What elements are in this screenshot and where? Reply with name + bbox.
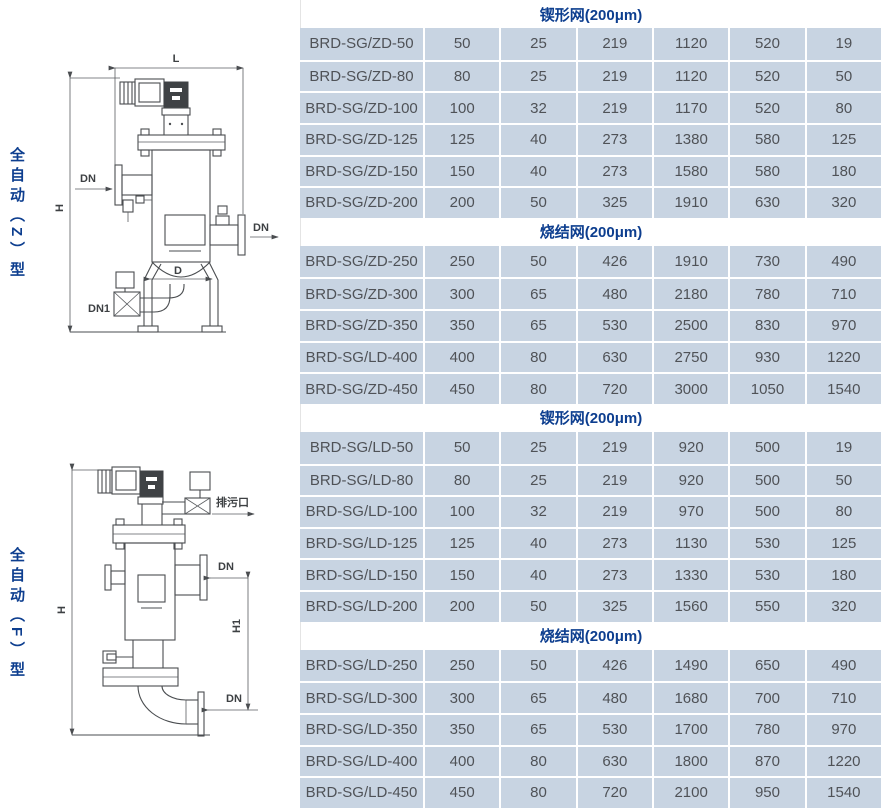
table-row: BRD-SG/LD-4004008063018008701220 [300,745,881,777]
value-cell: 25 [501,432,575,464]
table-row: BRD-SG/LD-350350655301700780970 [300,713,881,745]
value-cell: 300 [425,683,499,713]
value-cell: 530 [578,311,652,341]
value-cell: 580 [730,125,804,155]
table-section-z-wedge: 锲形网(200μm) BRD-SG/ZD-505025219112052019B… [300,0,881,218]
value-cell: 1130 [654,529,728,559]
value-cell: 1540 [807,778,881,808]
table-row: BRD-SG/ZD-10010032219117052080 [300,91,881,123]
table-rows-f-sintered: BRD-SG/LD-250250504261490650490BRD-SG/LD… [300,650,881,808]
value-cell: 530 [730,529,804,559]
value-cell: 830 [730,311,804,341]
value-cell: 200 [425,188,499,218]
value-cell: 490 [807,246,881,278]
value-cell: 720 [578,374,652,404]
table-row: BRD-SG/ZD-125125402731380580125 [300,123,881,155]
model-cell: BRD-SG/LD-250 [300,650,423,682]
model-cell: BRD-SG/LD-80 [300,466,423,496]
section-header-sintered-z: 烧结网(200μm) [300,218,881,246]
value-cell: 530 [578,715,652,745]
value-cell: 19 [807,28,881,60]
value-cell: 65 [501,279,575,309]
dim-label-dn-in: DN [80,173,96,185]
model-cell: BRD-SG/LD-125 [300,529,423,559]
dim-label-h1: H1 [231,619,243,633]
table-rows-z-wedge: BRD-SG/ZD-505025219112052019BRD-SG/ZD-80… [300,28,881,218]
value-cell: 426 [578,650,652,682]
value-cell: 1490 [654,650,728,682]
value-cell: 50 [807,466,881,496]
value-cell: 1910 [654,188,728,218]
value-cell: 32 [501,497,575,527]
table-row: BRD-SG/ZD-45045080720300010501540 [300,372,881,404]
model-cell: BRD-SG/LD-150 [300,560,423,590]
value-cell: 870 [730,747,804,777]
model-cell: BRD-SG/ZD-150 [300,157,423,187]
value-cell: 65 [501,683,575,713]
catalog-page: 全自动（Z）型 全自动（F）型 L H [0,0,881,808]
value-cell: 630 [730,188,804,218]
table-section-f-wedge: 锲形网(200μm) BRD-SG/LD-50502521992050019BR… [300,404,881,622]
value-cell: 550 [730,592,804,622]
value-cell: 80 [807,93,881,123]
value-cell: 273 [578,157,652,187]
value-cell: 325 [578,188,652,218]
value-cell: 1580 [654,157,728,187]
value-cell: 80 [501,747,575,777]
value-cell: 50 [501,188,575,218]
value-cell: 920 [654,432,728,464]
value-cell: 219 [578,432,652,464]
section-header-wedge-f: 锲形网(200μm) [300,404,881,432]
value-cell: 250 [425,650,499,682]
value-cell: 780 [730,279,804,309]
dim-label-H: H [54,204,66,212]
dim-label-h: H [56,606,68,614]
value-cell: 125 [425,529,499,559]
value-cell: 25 [501,28,575,60]
value-cell: 1800 [654,747,728,777]
value-cell: 630 [578,747,652,777]
value-cell: 1910 [654,246,728,278]
value-cell: 25 [501,62,575,92]
value-cell: 50 [501,592,575,622]
value-cell: 273 [578,529,652,559]
model-cell: BRD-SG/ZD-80 [300,62,423,92]
model-cell: BRD-SG/ZD-250 [300,246,423,278]
value-cell: 100 [425,93,499,123]
value-cell: 1330 [654,560,728,590]
value-cell: 180 [807,157,881,187]
value-cell: 40 [501,529,575,559]
model-cell: BRD-SG/LD-350 [300,715,423,745]
model-cell: BRD-SG/ZD-300 [300,279,423,309]
value-cell: 219 [578,28,652,60]
value-cell: 50 [501,650,575,682]
model-cell: BRD-SG/ZD-450 [300,374,423,404]
table-row: BRD-SG/ZD-505025219112052019 [300,28,881,60]
value-cell: 150 [425,157,499,187]
value-cell: 730 [730,246,804,278]
value-cell: 219 [578,93,652,123]
model-cell: BRD-SG/LD-200 [300,592,423,622]
table-row: BRD-SG/LD-200200503251560550320 [300,590,881,622]
value-cell: 480 [578,683,652,713]
value-cell: 3000 [654,374,728,404]
value-cell: 630 [578,343,652,373]
value-cell: 219 [578,466,652,496]
value-cell: 50 [807,62,881,92]
value-cell: 80 [425,62,499,92]
table-row: BRD-SG/LD-4504508072021009501540 [300,776,881,808]
value-cell: 80 [501,343,575,373]
value-cell: 920 [654,466,728,496]
value-cell: 2180 [654,279,728,309]
table-row: BRD-SG/LD-50502521992050019 [300,432,881,464]
value-cell: 450 [425,778,499,808]
value-cell: 580 [730,157,804,187]
table-section-f-sintered: 烧结网(200μm) BRD-SG/LD-2502505042614906504… [300,622,881,808]
value-cell: 320 [807,592,881,622]
value-cell: 710 [807,683,881,713]
value-cell: 300 [425,279,499,309]
model-cell: BRD-SG/LD-400 [300,343,423,373]
table-row: BRD-SG/ZD-808025219112052050 [300,60,881,92]
dim-label-L: L [173,53,180,65]
type-label-z: 全自动（Z）型 [7,147,25,281]
value-cell: 500 [730,466,804,496]
value-cell: 350 [425,311,499,341]
value-cell: 2500 [654,311,728,341]
value-cell: 50 [425,28,499,60]
value-cell: 1120 [654,28,728,60]
model-cell: BRD-SG/LD-400 [300,747,423,777]
value-cell: 50 [425,432,499,464]
model-cell: BRD-SG/ZD-350 [300,311,423,341]
model-cell: BRD-SG/ZD-100 [300,93,423,123]
value-cell: 520 [730,28,804,60]
value-cell: 273 [578,560,652,590]
value-cell: 1220 [807,747,881,777]
value-cell: 970 [654,497,728,527]
value-cell: 780 [730,715,804,745]
value-cell: 1050 [730,374,804,404]
dim-label-dn-out: DN [253,222,269,234]
value-cell: 1380 [654,125,728,155]
value-cell: 700 [730,683,804,713]
diagram-f-type: H 排污口 [50,446,302,761]
value-cell: 1120 [654,62,728,92]
model-cell: BRD-SG/LD-450 [300,778,423,808]
value-cell: 1540 [807,374,881,404]
table-row: BRD-SG/LD-300300654801680700710 [300,681,881,713]
model-cell: BRD-SG/ZD-200 [300,188,423,218]
value-cell: 65 [501,311,575,341]
table-row: BRD-SG/ZD-350350655302500830970 [300,309,881,341]
table-rows-z-sintered: BRD-SG/ZD-250250504261910730490BRD-SG/ZD… [300,246,881,404]
value-cell: 80 [807,497,881,527]
value-cell: 500 [730,432,804,464]
value-cell: 219 [578,497,652,527]
value-cell: 180 [807,560,881,590]
table-row: BRD-SG/LD-4004008063027509301220 [300,341,881,373]
value-cell: 1220 [807,343,881,373]
table-row: BRD-SG/ZD-300300654802180780710 [300,277,881,309]
table-rows-f-wedge: BRD-SG/LD-50502521992050019BRD-SG/LD-808… [300,432,881,622]
value-cell: 100 [425,497,499,527]
table-row: BRD-SG/ZD-150150402731580580180 [300,155,881,187]
value-cell: 1170 [654,93,728,123]
value-cell: 65 [501,715,575,745]
value-cell: 426 [578,246,652,278]
value-cell: 490 [807,650,881,682]
value-cell: 273 [578,125,652,155]
value-cell: 32 [501,93,575,123]
drain-outlet-label: 排污口 [216,495,249,509]
dim-label-D: D [174,265,182,277]
value-cell: 970 [807,715,881,745]
value-cell: 1680 [654,683,728,713]
value-cell: 450 [425,374,499,404]
value-cell: 720 [578,778,652,808]
spec-tables: 锲形网(200μm) BRD-SG/ZD-505025219112052019B… [300,0,881,808]
model-cell: BRD-SG/ZD-125 [300,125,423,155]
model-cell: BRD-SG/LD-300 [300,683,423,713]
value-cell: 1560 [654,592,728,622]
table-row: BRD-SG/ZD-250250504261910730490 [300,246,881,278]
table-row: BRD-SG/LD-80802521992050050 [300,464,881,496]
dim-label-dn-bottom: DN [226,693,242,705]
value-cell: 25 [501,466,575,496]
value-cell: 930 [730,343,804,373]
table-row: BRD-SG/LD-1001003221997050080 [300,495,881,527]
value-cell: 500 [730,497,804,527]
section-header-wedge-z: 锲形网(200μm) [300,0,881,28]
value-cell: 125 [807,125,881,155]
value-cell: 1700 [654,715,728,745]
diagram-z-type: L H DN [50,46,302,346]
model-cell: BRD-SG/LD-50 [300,432,423,464]
value-cell: 400 [425,343,499,373]
value-cell: 970 [807,311,881,341]
value-cell: 200 [425,592,499,622]
value-cell: 219 [578,62,652,92]
value-cell: 350 [425,715,499,745]
model-cell: BRD-SG/LD-100 [300,497,423,527]
value-cell: 950 [730,778,804,808]
value-cell: 480 [578,279,652,309]
model-cell: BRD-SG/ZD-50 [300,28,423,60]
type-label-f: 全自动（F）型 [7,547,25,681]
table-row: BRD-SG/ZD-200200503251910630320 [300,186,881,218]
section-header-sintered-f: 烧结网(200μm) [300,622,881,650]
table-section-z-sintered: 烧结网(200μm) BRD-SG/ZD-2502505042619107304… [300,218,881,404]
value-cell: 40 [501,157,575,187]
value-cell: 520 [730,93,804,123]
value-cell: 125 [425,125,499,155]
table-row: BRD-SG/LD-150150402731330530180 [300,558,881,590]
value-cell: 710 [807,279,881,309]
value-cell: 50 [501,246,575,278]
value-cell: 400 [425,747,499,777]
dim-label-dn-side: DN [218,561,234,573]
value-cell: 250 [425,246,499,278]
table-row: BRD-SG/LD-250250504261490650490 [300,650,881,682]
value-cell: 2750 [654,343,728,373]
value-cell: 320 [807,188,881,218]
value-cell: 19 [807,432,881,464]
value-cell: 325 [578,592,652,622]
value-cell: 530 [730,560,804,590]
value-cell: 80 [425,466,499,496]
value-cell: 125 [807,529,881,559]
value-cell: 40 [501,125,575,155]
value-cell: 2100 [654,778,728,808]
value-cell: 150 [425,560,499,590]
value-cell: 520 [730,62,804,92]
value-cell: 650 [730,650,804,682]
table-row: BRD-SG/LD-125125402731130530125 [300,527,881,559]
dim-label-dn1: DN1 [88,303,110,315]
value-cell: 40 [501,560,575,590]
value-cell: 80 [501,374,575,404]
value-cell: 80 [501,778,575,808]
